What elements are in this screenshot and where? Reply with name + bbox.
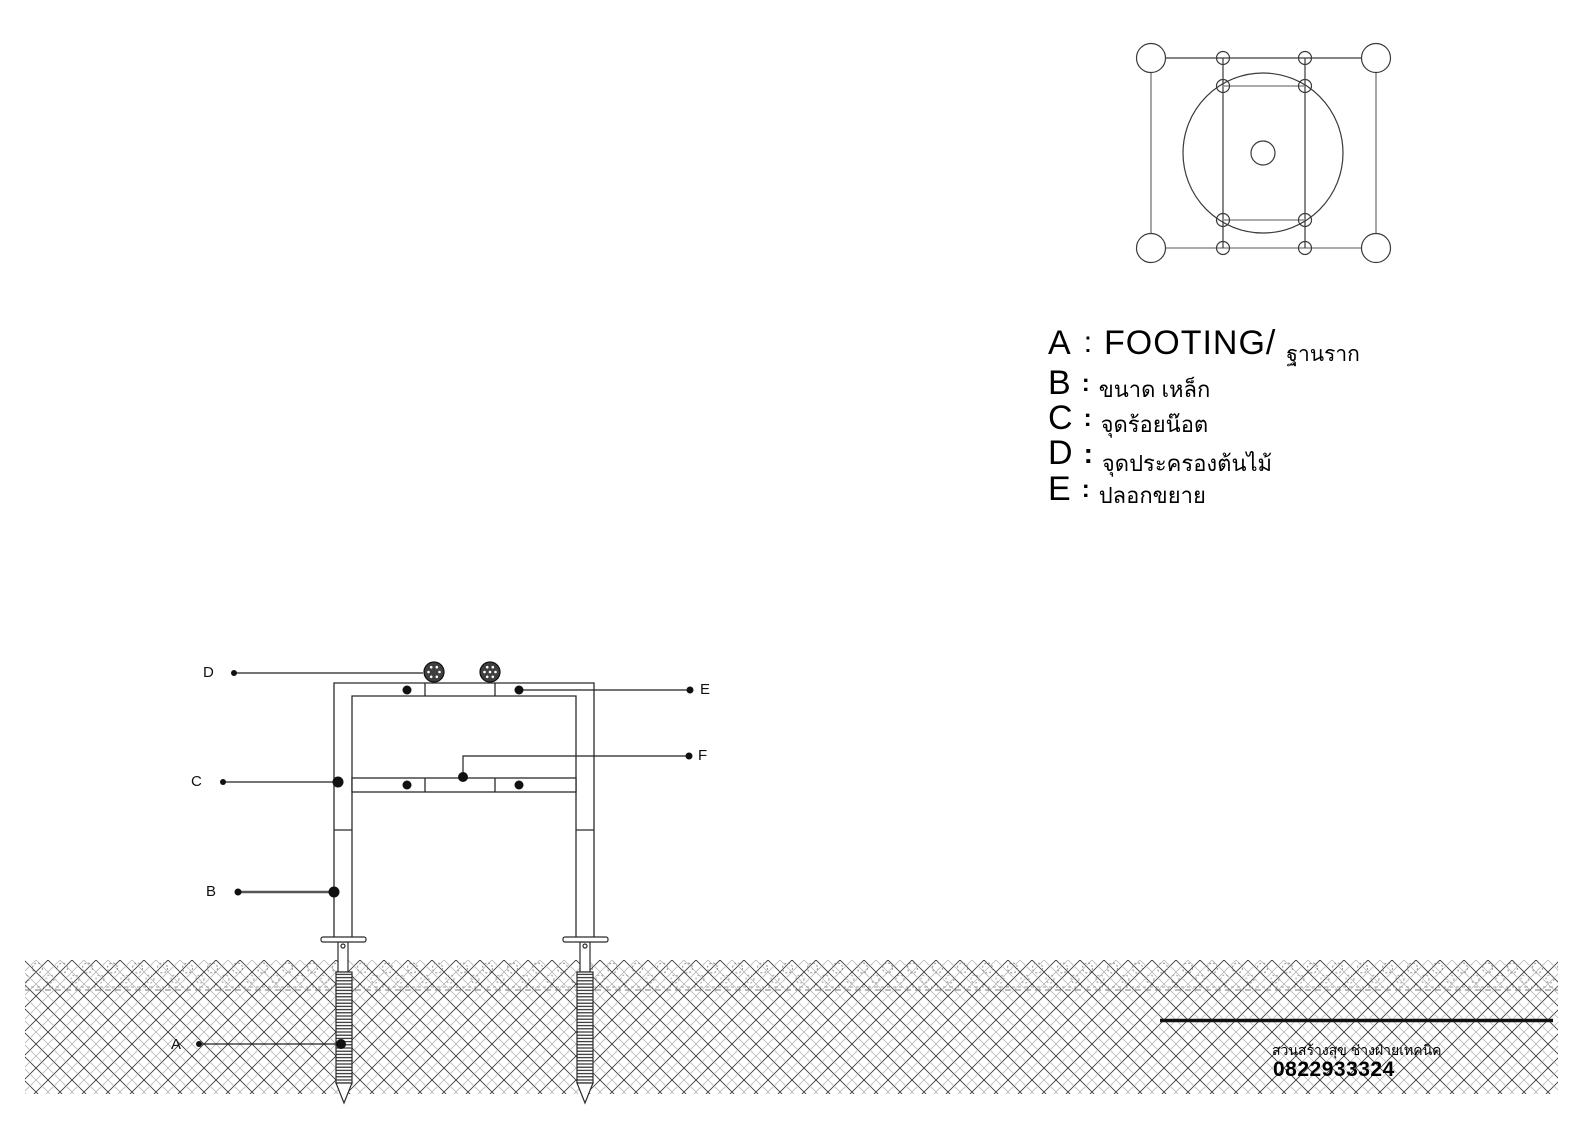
legend-row-c: C : จุดร้อยน๊อต bbox=[1048, 399, 1208, 438]
callout-e-label: E bbox=[700, 682, 710, 697]
footer-phone-text: 0822933324 bbox=[1273, 1059, 1395, 1080]
legend-separator: : bbox=[1084, 438, 1093, 470]
right-base-flange bbox=[563, 937, 608, 942]
middle-bar-bolt-dot bbox=[515, 781, 524, 790]
legend-letter: B bbox=[1048, 364, 1072, 403]
legend-letter: E bbox=[1048, 470, 1072, 509]
legend-separator: : bbox=[1084, 326, 1092, 360]
legend-letter: A bbox=[1048, 324, 1072, 363]
plan-corner-anchor bbox=[1362, 234, 1391, 263]
legend-letter: D bbox=[1048, 434, 1074, 473]
c-point-dot bbox=[333, 777, 344, 788]
legend-row-e: E : ปลอกขยาย bbox=[1048, 470, 1206, 509]
right-anchor-hole bbox=[583, 944, 587, 948]
left-anchor-thread bbox=[336, 972, 352, 1083]
legend-row-b: B : ขนาด เหล็ก bbox=[1048, 364, 1210, 403]
plan-center-hole bbox=[1251, 141, 1275, 165]
top-bar-bolt-dot bbox=[403, 686, 412, 695]
top-bar-bolt-dot bbox=[515, 686, 524, 695]
footing-plan-view bbox=[1137, 44, 1391, 263]
callout-b-label: B bbox=[206, 884, 216, 899]
plan-pile-circle bbox=[1183, 73, 1343, 233]
left-base-flange bbox=[321, 937, 366, 942]
tree-support-bolts bbox=[424, 662, 500, 682]
callout-d-label: D bbox=[203, 665, 214, 680]
cad-linework bbox=[0, 0, 1587, 1122]
legend-label-en: FOOTING/ bbox=[1104, 324, 1276, 363]
plan-corner-anchor bbox=[1137, 44, 1166, 73]
left-anchor-hole bbox=[341, 944, 345, 948]
legend-separator: : bbox=[1082, 476, 1090, 504]
legend-separator: : bbox=[1084, 405, 1092, 433]
plan-corner-anchor bbox=[1137, 234, 1166, 263]
portal-frame bbox=[334, 683, 594, 937]
callout-a-label: A bbox=[171, 1037, 181, 1052]
topsoil-band bbox=[25, 960, 1558, 990]
callout-f-label: F bbox=[698, 748, 707, 763]
footer-org-text: สวนสร้างสุข ช่างฝ่ายเทคนิค bbox=[1272, 1043, 1442, 1057]
a-point-dot bbox=[336, 1039, 346, 1049]
frame-outer-outline bbox=[334, 683, 594, 937]
legend-letter: C bbox=[1048, 399, 1074, 438]
frame-inner-outline bbox=[352, 696, 576, 937]
b-point-dot bbox=[329, 887, 340, 898]
tree-support-bolt-right bbox=[480, 662, 500, 682]
middle-bar-bolt-dot bbox=[403, 781, 412, 790]
legend-row-d: D : จุดประครองต้นไม้ bbox=[1048, 434, 1272, 473]
right-anchor-thread bbox=[577, 972, 593, 1083]
legend-row-a: A : FOOTING/ ฐานราก bbox=[1048, 324, 1360, 363]
legend-label-th: ปลอกขยาย bbox=[1099, 478, 1206, 513]
plan-corner-anchor bbox=[1362, 44, 1391, 73]
drawing-canvas: A : FOOTING/ ฐานราก B : ขนาด เหล็ก C : จ… bbox=[0, 0, 1587, 1122]
callout-c-label: C bbox=[191, 774, 202, 789]
tree-support-bolt-left bbox=[424, 662, 444, 682]
legend-label-th: ฐานราก bbox=[1286, 338, 1360, 371]
f-point-dot bbox=[458, 772, 468, 782]
legend-separator: : bbox=[1082, 370, 1090, 398]
